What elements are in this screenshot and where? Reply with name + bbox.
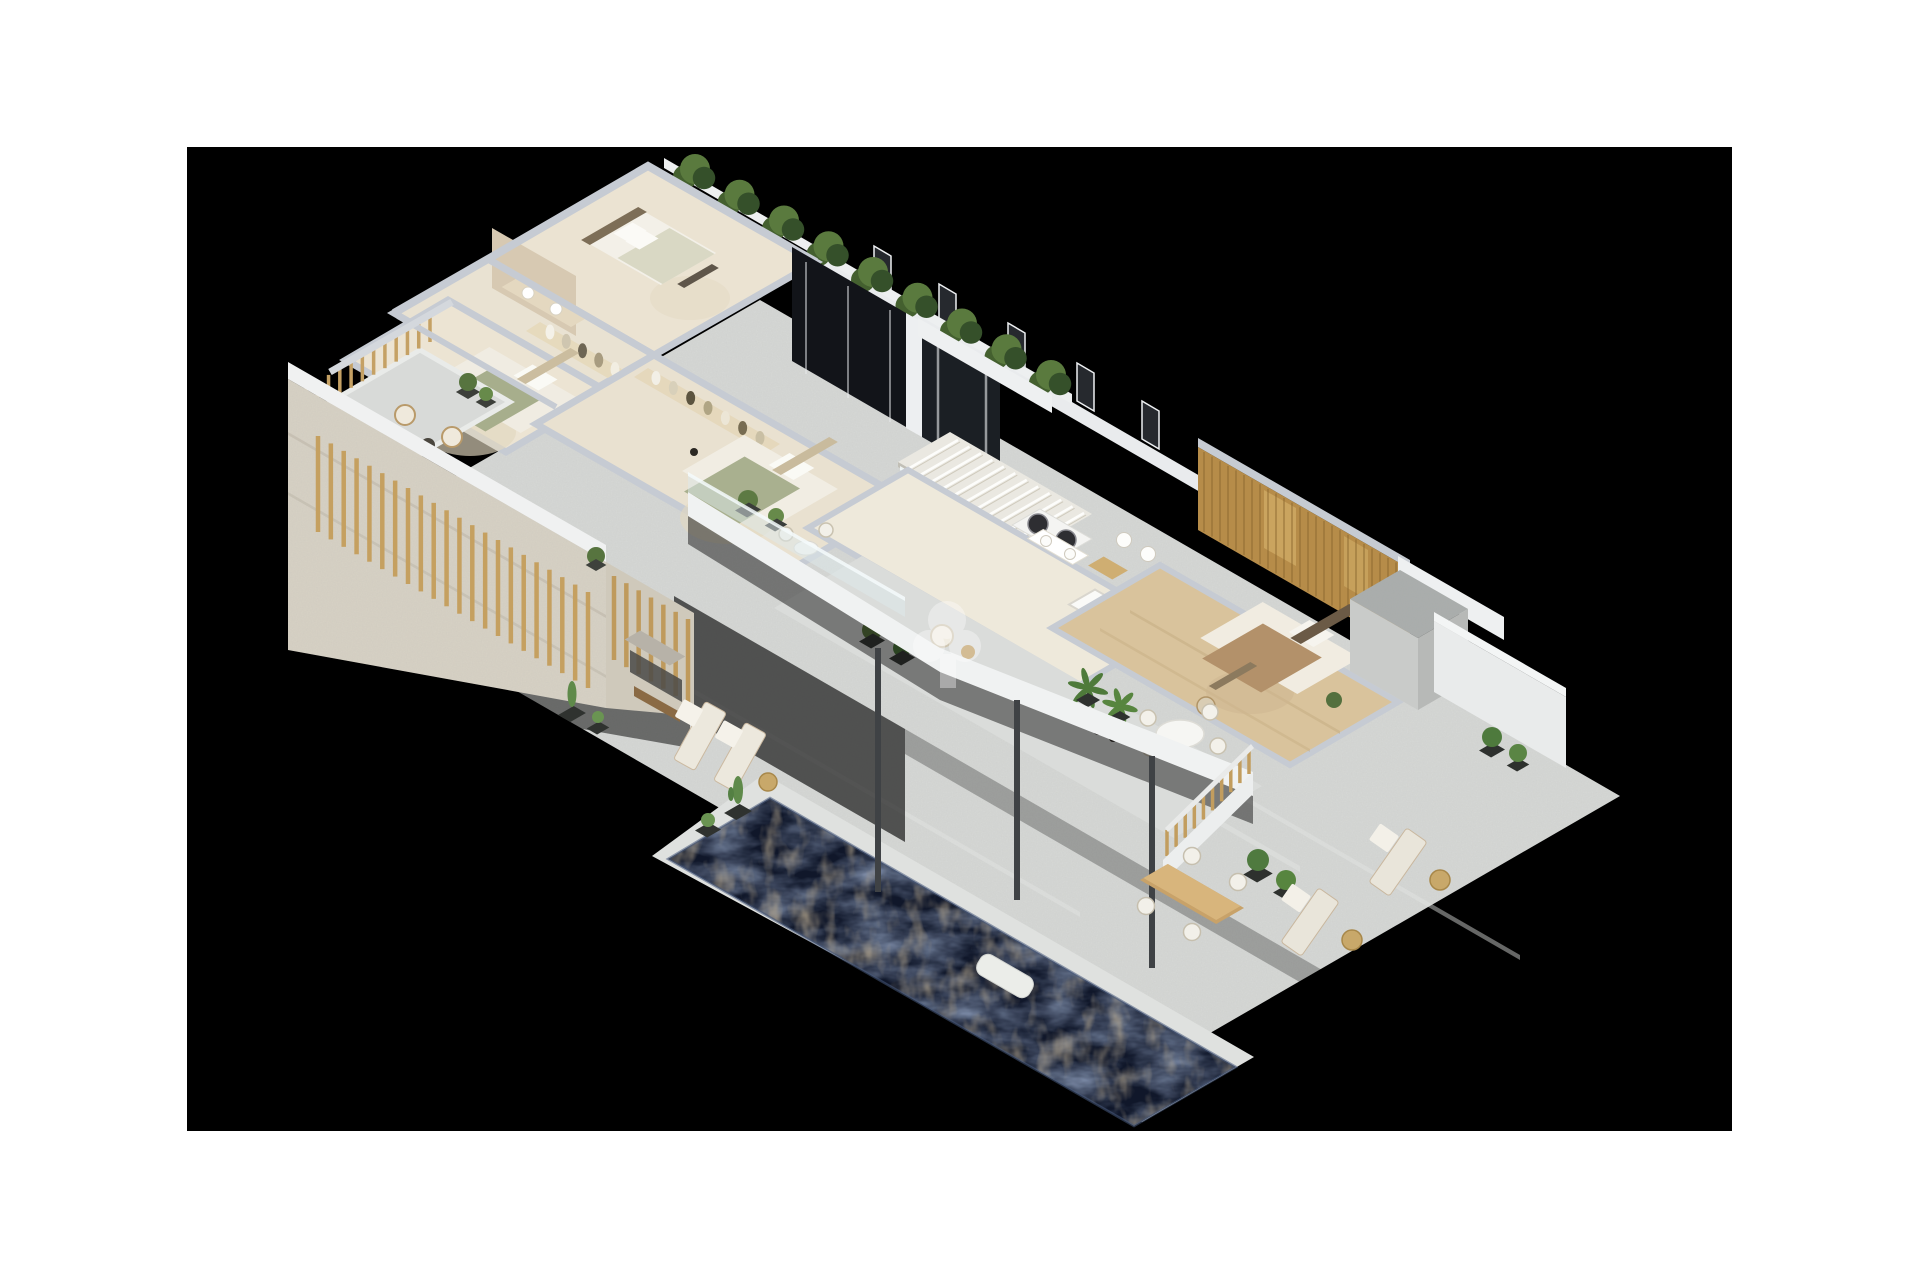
bedroom4-plant — [1326, 692, 1342, 708]
ground-plant-4 — [701, 813, 715, 827]
ground-cactus-3-arm — [728, 787, 734, 801]
terrace-left-chair-2 — [442, 427, 462, 447]
patio-chair-2 — [1184, 924, 1201, 941]
patio-planter-bush-1 — [1247, 849, 1269, 871]
bathroom2-basin-2 — [1065, 549, 1076, 560]
balcony-dining-chair-1 — [1140, 710, 1156, 726]
page: 3D isometric floor plan render of a mode… — [0, 0, 1920, 1280]
patio-chair-4 — [1230, 874, 1247, 891]
balcony-dining-chair-2 — [1202, 704, 1218, 720]
terrace-left-plant-2 — [479, 387, 493, 401]
ground-cactus-2 — [592, 711, 604, 723]
patio-chair-1 — [1138, 898, 1155, 915]
villa-floorplan-render: 3D isometric floor plan render of a mode… — [0, 0, 1920, 1280]
right-bush-1 — [1482, 727, 1502, 747]
right-bush-2 — [1509, 744, 1527, 762]
ground-cactus-3 — [733, 776, 743, 804]
column-1 — [875, 648, 881, 892]
patio-chair-3 — [1184, 848, 1201, 865]
lounger-right-1-table — [1342, 930, 1362, 950]
bedroom3-floor-lamp — [690, 448, 698, 456]
column-3 — [1149, 756, 1155, 968]
bathroom2-basin-1 — [1041, 536, 1052, 547]
lounger-left-table — [759, 773, 777, 791]
bathroom2-toilet — [1117, 533, 1132, 548]
balcony-dining-chair-4 — [1210, 738, 1226, 754]
bathroom1-basin-1 — [522, 287, 534, 299]
lounger-right-2-table — [1430, 870, 1450, 890]
terrace-left-plant-1 — [459, 373, 477, 391]
ground-cactus-1 — [568, 681, 577, 707]
front-balcony-chair-2 — [819, 523, 833, 537]
bathroom2-bidet — [1141, 547, 1156, 562]
terrace-left-chair-1 — [395, 405, 415, 425]
column-2 — [1014, 700, 1020, 900]
bathroom1-basin-2 — [550, 303, 562, 315]
